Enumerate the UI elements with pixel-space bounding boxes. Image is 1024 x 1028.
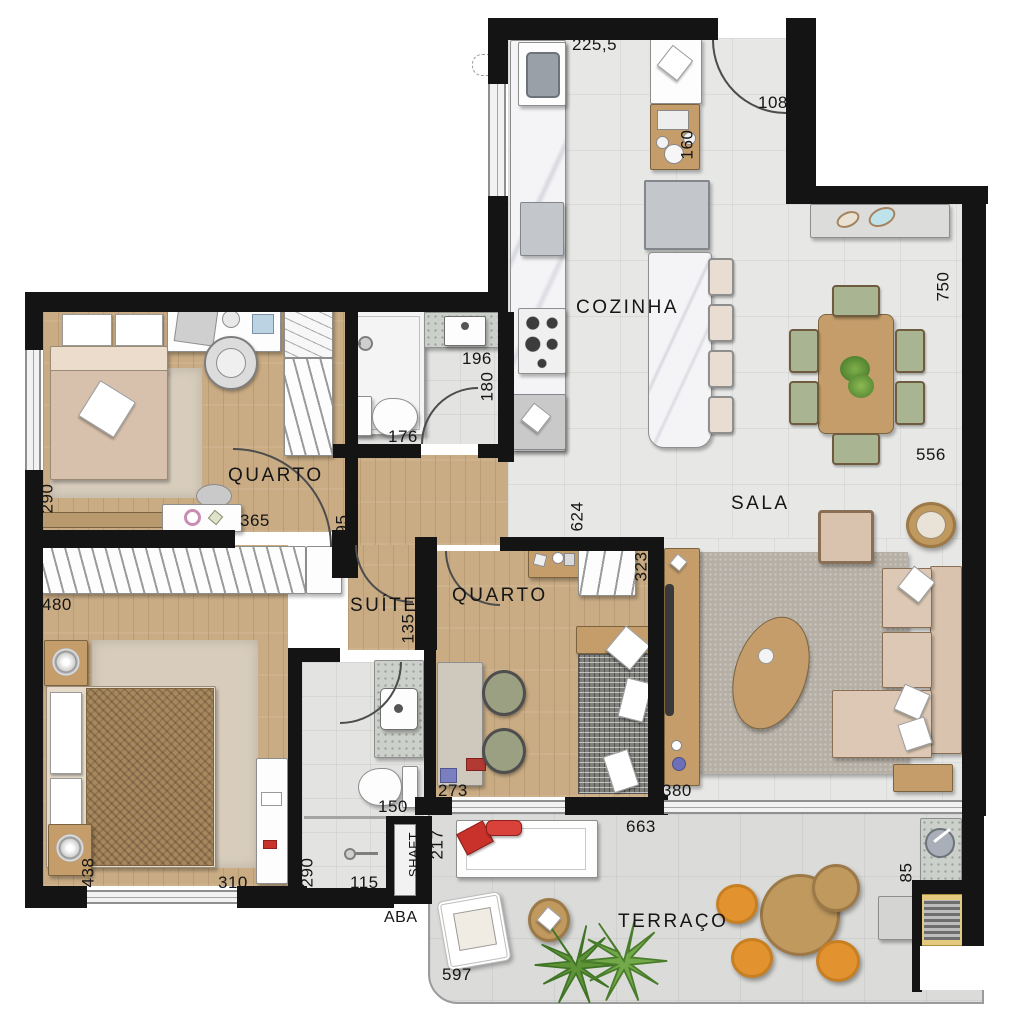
bbq-side-box — [878, 896, 914, 940]
dining-chair-left-2 — [789, 381, 819, 425]
bed1-headboard-band — [50, 346, 168, 372]
dim-556: 556 — [916, 446, 946, 463]
wall — [786, 18, 816, 204]
desk1-pad — [252, 314, 274, 334]
ensuite-shower-head-icon — [344, 848, 356, 860]
wall — [333, 444, 421, 458]
quarto2-chair-1 — [482, 670, 526, 716]
wall — [345, 312, 358, 532]
desk1-chair-cushion — [216, 348, 246, 378]
dim-108: 108 — [758, 94, 788, 111]
quarto2-wardrobe — [578, 548, 636, 596]
suite-dresser-red-decor — [263, 840, 277, 849]
bed1-pillow-2 — [115, 314, 163, 346]
label-quarto2: QUARTO — [452, 586, 548, 605]
dining-chair-bottom — [832, 433, 880, 465]
wall — [25, 312, 43, 350]
terrace-wood-table-small — [812, 864, 860, 912]
sliding-door-sala — [664, 800, 962, 814]
suite-bed-pillow-1 — [50, 692, 82, 774]
suite-dresser — [256, 758, 288, 884]
island-stool-1 — [708, 258, 734, 296]
wall — [288, 648, 340, 662]
dim-597: 597 — [442, 966, 472, 983]
sofa-seat-2 — [882, 632, 932, 688]
console-decor-dot-blue — [672, 757, 686, 771]
dining-plant-2 — [848, 374, 874, 398]
bed1-bench — [38, 512, 166, 528]
shelf1 — [284, 306, 333, 358]
bbq-bowl — [925, 828, 955, 858]
pantry-tray — [657, 110, 689, 130]
kitchen-island — [648, 252, 712, 448]
lounger-red-pillow-2 — [486, 820, 522, 836]
armchair — [818, 510, 874, 564]
wall — [912, 880, 964, 894]
sofa-back — [930, 566, 962, 754]
washing-machine — [520, 202, 564, 256]
fridge — [644, 180, 710, 250]
wall — [478, 444, 500, 458]
dim-310: 310 — [218, 874, 248, 891]
bath-sink — [444, 316, 486, 346]
quarto2-chair-2 — [482, 728, 526, 774]
label-cozinha: COZINHA — [576, 298, 679, 317]
tv — [665, 584, 674, 716]
wall — [25, 530, 235, 548]
wall — [962, 814, 984, 948]
dim-624: 624 — [568, 502, 585, 532]
dining-chair-top — [832, 285, 880, 317]
dim-196: 196 — [462, 350, 492, 367]
dim-180: 180 — [478, 372, 495, 402]
dim-135: 135 — [399, 614, 416, 644]
quarto2-shelf-decor-2 — [552, 552, 564, 564]
dim-380: 380 — [662, 782, 692, 799]
suite-wardrobe — [42, 546, 306, 594]
bath-sink-drain — [461, 322, 469, 330]
label-terraco: TERRAÇO — [618, 912, 728, 931]
shower-divider — [304, 816, 390, 819]
suite-lamp-1 — [52, 648, 80, 676]
sliding-door-quarto2 — [452, 800, 565, 814]
dim-663: 663 — [626, 818, 656, 835]
side-table-top — [916, 511, 946, 539]
dining-chair-right-2 — [895, 381, 925, 425]
wall — [25, 886, 87, 908]
suite-bed-blanket — [86, 688, 214, 866]
island-stool-4 — [708, 396, 734, 434]
toilet1-tank — [356, 396, 372, 436]
dim-85: 85 — [897, 863, 914, 883]
wall — [424, 648, 436, 800]
label-shaft: SHAFT — [407, 832, 420, 877]
label-suite: SUÍTE — [350, 596, 418, 615]
terrace-chair-cushion — [453, 907, 497, 951]
wall — [302, 888, 394, 908]
dim-115: 115 — [350, 874, 379, 891]
dim-290-ensuite: 290 — [298, 858, 315, 888]
dim-225-5: 225,5 — [572, 36, 617, 53]
dim-290-quarto1: 290 — [38, 484, 55, 514]
bed1-pillow-1 — [62, 314, 112, 346]
wall — [488, 40, 508, 84]
laundry-sink-basin — [526, 52, 560, 98]
wall — [332, 530, 358, 578]
console-decor-dot-white — [671, 740, 682, 751]
dim-273: 273 — [438, 782, 468, 799]
label-quarto1: QUARTO — [228, 466, 324, 485]
grill — [924, 900, 960, 940]
wall — [800, 186, 988, 204]
dim-480: 480 — [42, 596, 72, 613]
wall — [25, 292, 508, 312]
window-quarto1 — [25, 350, 41, 470]
dim-750: 750 — [934, 272, 951, 302]
quarto2-shelf-decor-3 — [564, 553, 575, 566]
window-suite — [87, 890, 237, 904]
wall — [415, 537, 437, 650]
suite-dresser-drawer — [261, 792, 282, 806]
floor-plan: COZINHA SALA QUARTO QUARTO SUÍTE TERRAÇO… — [0, 0, 1024, 1028]
dim-150: 150 — [378, 798, 408, 815]
wall — [500, 537, 656, 551]
wall — [962, 186, 986, 816]
wardrobe1 — [284, 358, 333, 456]
island-stool-3 — [708, 350, 734, 388]
dim-160: 160 — [678, 130, 695, 160]
dim-176: 176 — [388, 428, 418, 445]
wall — [288, 662, 302, 888]
dining-chair-left-1 — [789, 329, 819, 373]
terrace-pouf-2 — [731, 938, 773, 978]
dim-95: 95 — [333, 515, 350, 535]
sofa-side-table — [893, 764, 953, 792]
desk1-lamp — [222, 310, 240, 328]
window-kitchen — [488, 84, 506, 196]
terrace-pouf-3 — [816, 940, 860, 982]
ensuite-sink-drain — [394, 704, 403, 713]
dining-chair-right-1 — [895, 329, 925, 373]
stove — [518, 308, 566, 374]
coffee-table-decor — [758, 648, 774, 664]
wall — [498, 312, 514, 462]
label-aba: ABA — [384, 910, 418, 926]
floor-hall — [345, 455, 508, 545]
island-stool-2 — [708, 304, 734, 342]
dim-217: 217 — [428, 830, 445, 860]
dim-365: 365 — [240, 512, 270, 529]
label-sala: SALA — [731, 494, 790, 513]
dim-323: 323 — [632, 552, 649, 582]
nightstand1 — [162, 504, 242, 532]
nightstand1-clock — [184, 509, 201, 526]
wall-notch — [920, 946, 984, 990]
dim-438: 438 — [79, 858, 96, 888]
